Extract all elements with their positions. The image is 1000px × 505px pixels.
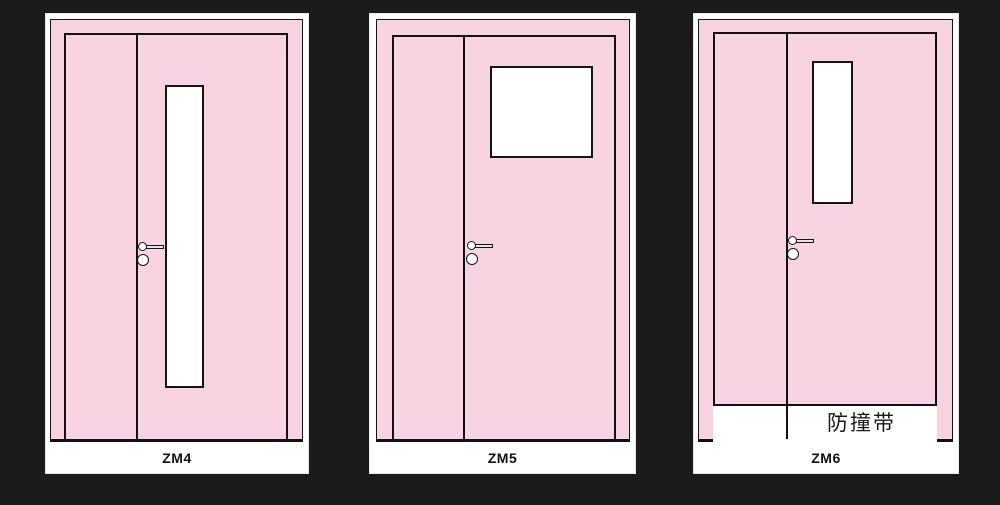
handle-rose-icon bbox=[788, 236, 797, 245]
vision-panel-window bbox=[812, 61, 853, 204]
door-label: ZM6 bbox=[811, 450, 841, 466]
door-elevation-diagram: ZM4 ZM5 防撞带 ZM6 bbox=[0, 0, 1000, 505]
handle-rose-icon bbox=[467, 241, 476, 250]
lock-cylinder-icon bbox=[787, 248, 799, 260]
door-card-zm6: 防撞带 ZM6 bbox=[694, 14, 958, 473]
bump-strip-label-zone: 防撞带 bbox=[786, 404, 937, 440]
vision-panel-window bbox=[490, 66, 593, 158]
door-handle-icon bbox=[788, 236, 828, 266]
door-handle-icon bbox=[138, 242, 178, 272]
door-handle-icon bbox=[467, 241, 507, 271]
door-label: ZM5 bbox=[488, 450, 518, 466]
label-strip: ZM5 bbox=[370, 442, 635, 473]
lock-cylinder-icon bbox=[466, 253, 478, 265]
leaf-divider-line bbox=[136, 33, 138, 439]
label-strip: ZM6 bbox=[694, 442, 958, 473]
bump-strip-label: 防撞带 bbox=[827, 407, 896, 437]
door-card-zm4: ZM4 bbox=[46, 14, 308, 473]
lock-cylinder-icon bbox=[137, 254, 149, 266]
door-card-zm5: ZM5 bbox=[370, 14, 635, 473]
label-strip: ZM4 bbox=[46, 442, 308, 473]
vision-panel-window bbox=[165, 85, 204, 388]
leaf-divider-line bbox=[463, 35, 465, 439]
handle-rose-icon bbox=[138, 242, 147, 251]
door-label: ZM4 bbox=[162, 450, 192, 466]
